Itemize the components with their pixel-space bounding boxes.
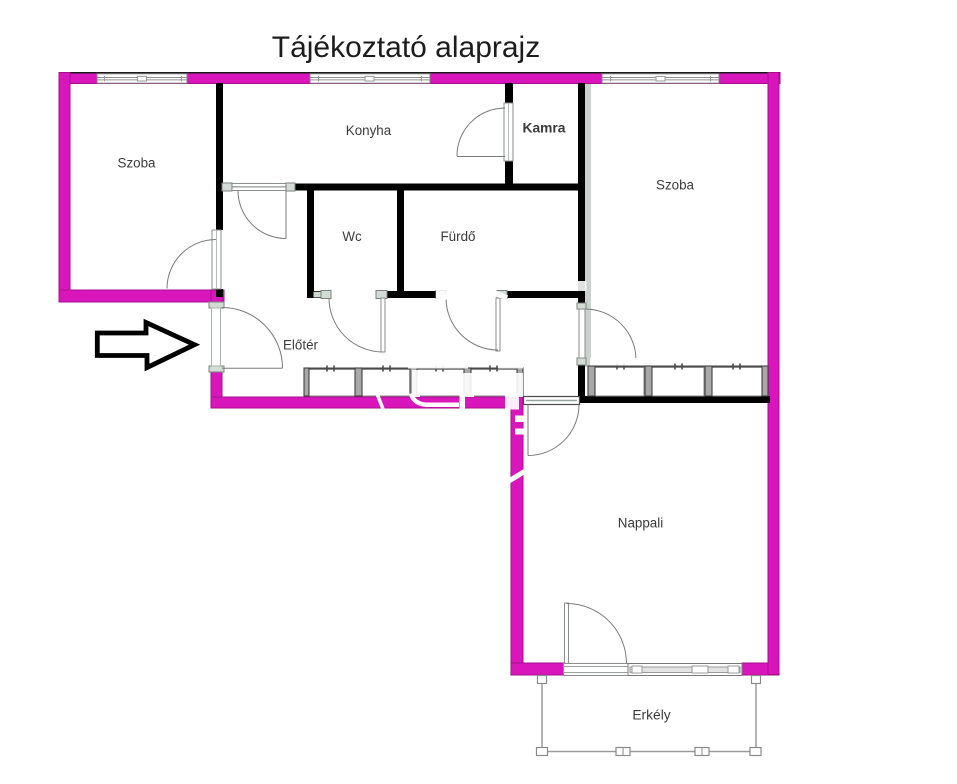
- svg-text:Wc: Wc: [342, 229, 362, 244]
- svg-text:Szoba: Szoba: [656, 178, 695, 193]
- svg-text:Fürdő: Fürdő: [441, 229, 476, 244]
- svg-text:Konyha: Konyha: [346, 123, 392, 138]
- svg-text:Szoba: Szoba: [118, 156, 157, 171]
- svg-text:Kamra: Kamra: [523, 121, 566, 136]
- svg-text:Erkély: Erkély: [632, 708, 670, 723]
- svg-text:Tájékoztató alaprajz: Tájékoztató alaprajz: [272, 31, 540, 64]
- svg-text:Előtér: Előtér: [283, 338, 319, 353]
- svg-text:Nappali: Nappali: [618, 516, 663, 531]
